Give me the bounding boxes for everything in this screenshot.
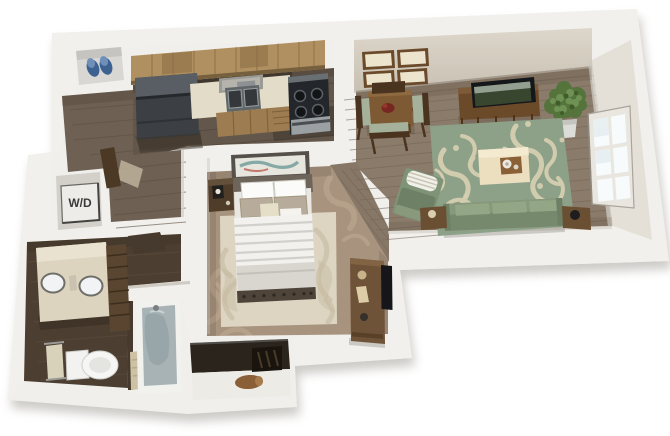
svg-text:W/D: W/D	[68, 196, 92, 210]
